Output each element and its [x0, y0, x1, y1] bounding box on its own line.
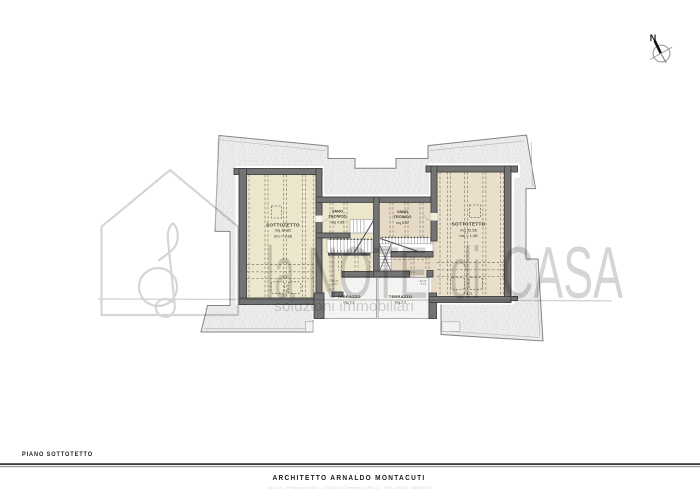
- svg-text:ARCHITETTO ARNALDO MONTACUTI: ARCHITETTO ARNALDO MONTACUTI: [273, 473, 426, 482]
- svg-text:mq 32.56: mq 32.56: [460, 228, 477, 233]
- svg-text:CASA: CASA: [501, 233, 623, 314]
- svg-text:mq 34.82: mq 34.82: [275, 228, 292, 233]
- svg-text:mq 6.57: mq 6.57: [396, 221, 409, 225]
- svg-text:soluzioni immobiliari: soluzioni immobiliari: [274, 298, 414, 315]
- svg-text:TECNICO: TECNICO: [394, 214, 412, 219]
- svg-text:TECNICO: TECNICO: [329, 214, 347, 219]
- svg-text:di: di: [450, 233, 481, 314]
- svg-text:PIANO SOTTOTETTO: PIANO SOTTOTETTO: [22, 451, 93, 458]
- svg-text:mq 4.65: mq 4.65: [331, 221, 344, 225]
- svg-text:SOTTOTETTO: SOTTOTETTO: [266, 222, 300, 227]
- svg-text:Via G. Petrarca 00 - 47023 Ces: Via G. Petrarca 00 - 47023 Cesena (FC) -…: [267, 486, 432, 490]
- svg-text:SOTTOTETTO: SOTTOTETTO: [452, 222, 486, 227]
